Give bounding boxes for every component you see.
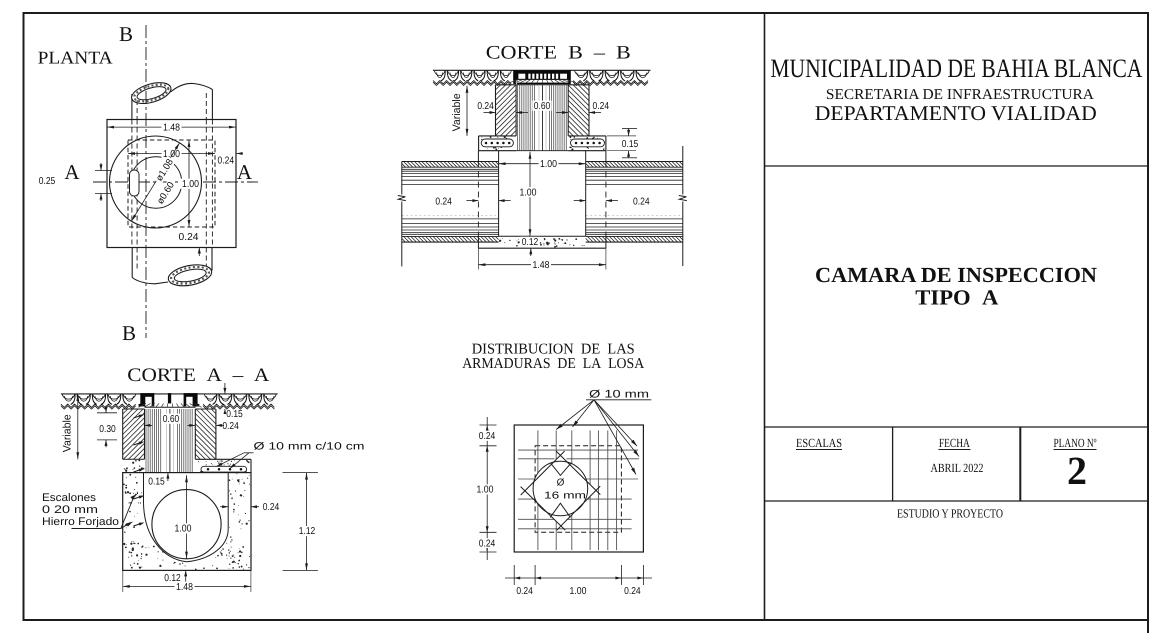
svg-text:0.24: 0.24 — [516, 586, 533, 597]
svg-text:0.24: 0.24 — [479, 538, 496, 549]
svg-text:2: 2 — [1067, 448, 1087, 493]
svg-text:0.25: 0.25 — [39, 176, 56, 187]
svg-text:DEPARTAMENTO VIALIDAD: DEPARTAMENTO VIALIDAD — [815, 101, 1097, 125]
svg-text:16 mm: 16 mm — [544, 491, 586, 502]
svg-text:Ø 10 mm: Ø 10 mm — [589, 388, 649, 400]
svg-text:0.15: 0.15 — [226, 409, 243, 420]
svg-text:CORTE A – A: CORTE A – A — [127, 365, 269, 386]
svg-text:0.24: 0.24 — [218, 155, 235, 166]
svg-text:0.60: 0.60 — [534, 101, 551, 112]
svg-text:0.24: 0.24 — [624, 586, 641, 597]
svg-text:0.24: 0.24 — [593, 101, 610, 112]
svg-text:Variable: Variable — [451, 93, 463, 131]
svg-text:MUNICIPALIDAD DE BAHIA BLANCA: MUNICIPALIDAD DE BAHIA BLANCA — [770, 53, 1142, 83]
svg-text:0.24: 0.24 — [179, 232, 199, 243]
svg-text:FECHA: FECHA — [939, 436, 970, 450]
svg-text:Escalones: Escalones — [42, 492, 97, 504]
svg-text:0.24: 0.24 — [633, 197, 650, 208]
svg-text:1.00: 1.00 — [570, 586, 587, 597]
svg-text:ESCALAS: ESCALAS — [796, 436, 842, 450]
svg-text:Ø 10 mm c/10 cm: Ø 10 mm c/10 cm — [254, 441, 365, 453]
svg-text:Hierro Forjado: Hierro Forjado — [42, 516, 119, 528]
svg-text:0.60: 0.60 — [163, 414, 180, 425]
svg-text:Variable: Variable — [61, 414, 73, 452]
svg-text:ESTUDIO Y PROYECTO: ESTUDIO Y PROYECTO — [897, 507, 1003, 521]
svg-text:A: A — [64, 160, 80, 184]
svg-text:TIPO A: TIPO A — [915, 286, 998, 310]
svg-text:0.24: 0.24 — [263, 502, 280, 513]
svg-text:0.24: 0.24 — [435, 197, 452, 208]
svg-text:1.00: 1.00 — [520, 187, 537, 198]
svg-text:B: B — [119, 22, 133, 46]
svg-text:1.48: 1.48 — [533, 260, 550, 271]
svg-text:CORTE B – B: CORTE B – B — [486, 43, 631, 64]
svg-text:0.15: 0.15 — [622, 139, 639, 150]
svg-text:1.00: 1.00 — [182, 179, 199, 190]
svg-text:1.12: 1.12 — [299, 526, 316, 537]
svg-text:B: B — [122, 321, 136, 345]
svg-text:0.24: 0.24 — [479, 431, 496, 442]
svg-text:1.48: 1.48 — [176, 582, 193, 593]
svg-text:Ø: Ø — [557, 478, 565, 489]
svg-text:CAMARA DE INSPECCION: CAMARA DE INSPECCION — [815, 263, 1097, 287]
svg-text:1.00: 1.00 — [540, 159, 557, 170]
svg-text:0.30: 0.30 — [99, 424, 116, 435]
svg-text:1.00: 1.00 — [477, 485, 494, 496]
svg-text:PLANTA: PLANTA — [38, 48, 113, 68]
svg-text:0.24: 0.24 — [477, 101, 494, 112]
svg-text:0 20 mm: 0 20 mm — [42, 504, 98, 516]
svg-text:0.24: 0.24 — [222, 421, 239, 432]
svg-text:A: A — [237, 160, 253, 184]
svg-text:ARMADURAS DE LA LOSA: ARMADURAS DE LA LOSA — [462, 356, 644, 372]
svg-text:0.15: 0.15 — [148, 476, 165, 487]
svg-text:0.12: 0.12 — [522, 237, 539, 248]
svg-text:1.48: 1.48 — [163, 123, 180, 134]
svg-text:ABRIL 2022: ABRIL 2022 — [931, 461, 984, 475]
svg-text:1.00: 1.00 — [175, 524, 192, 535]
